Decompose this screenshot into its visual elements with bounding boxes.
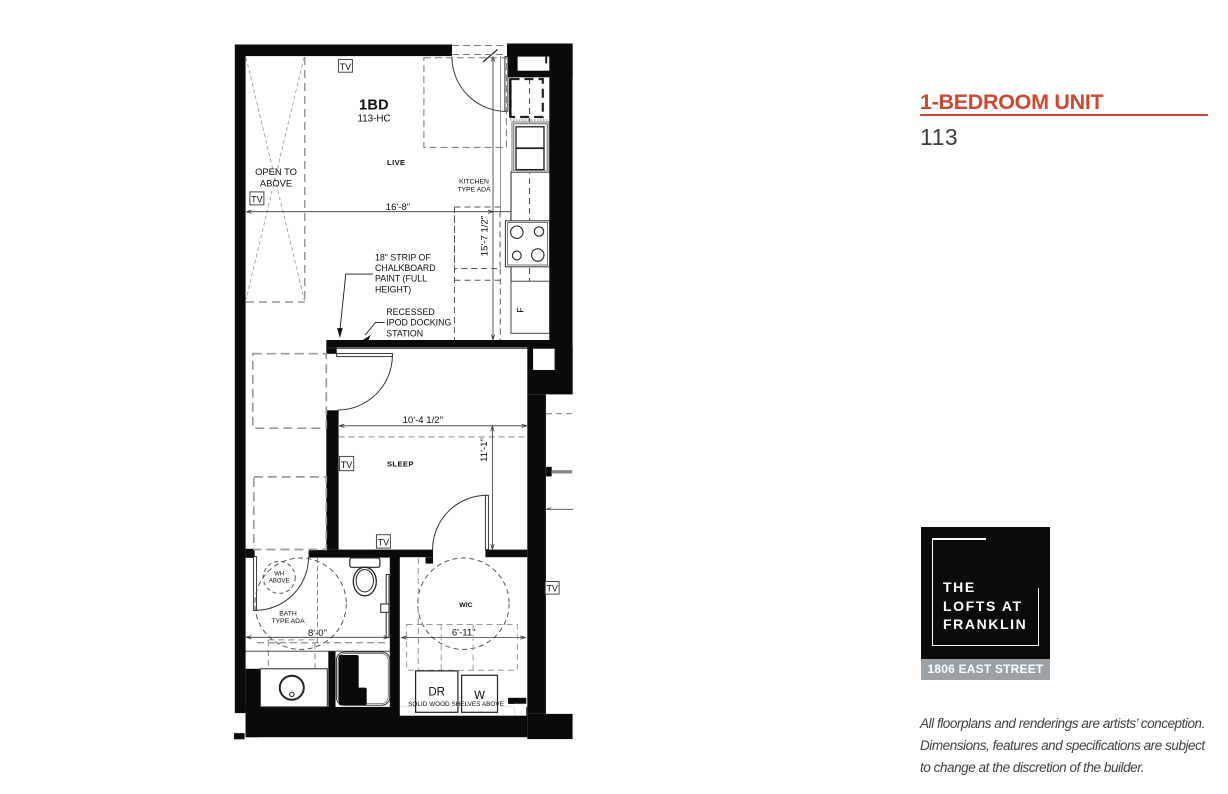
svg-text:TV: TV (378, 538, 390, 548)
svg-text:HEIGHT): HEIGHT) (375, 284, 411, 294)
svg-text:OPEN TO: OPEN TO (255, 166, 297, 177)
svg-text:CHALKBOARD: CHALKBOARD (375, 263, 436, 273)
svg-text:TV: TV (341, 460, 353, 470)
svg-text:18" STRIP OF: 18" STRIP OF (375, 252, 431, 262)
svg-text:TYPE ADA: TYPE ADA (271, 618, 305, 625)
svg-text:KITCHEN: KITCHEN (459, 179, 489, 186)
svg-text:F: F (516, 307, 526, 313)
svg-text:ABOVE: ABOVE (260, 178, 292, 189)
svg-text:BATH: BATH (279, 611, 297, 618)
svg-text:TV: TV (251, 194, 263, 204)
svg-text:10'-4 1/2": 10'-4 1/2" (403, 415, 443, 426)
svg-text:LIVE: LIVE (387, 158, 405, 167)
svg-text:113-HC: 113-HC (357, 114, 390, 125)
svg-text:RECESSED: RECESSED (386, 307, 434, 317)
svg-text:SLEEP: SLEEP (387, 460, 414, 469)
svg-text:DR: DR (428, 687, 445, 699)
svg-text:SOLID WOOD SHELVES ABOVE: SOLID WOOD SHELVES ABOVE (408, 701, 504, 708)
svg-text:6'-11": 6'-11" (452, 628, 476, 639)
svg-text:PAINT (FULL: PAINT (FULL (375, 274, 427, 284)
svg-text:1BD: 1BD (359, 98, 389, 114)
svg-text:STATION: STATION (386, 328, 423, 338)
svg-text:TV: TV (546, 584, 558, 594)
svg-text:IPOD DOCKING: IPOD DOCKING (386, 318, 451, 328)
svg-text:WIC: WIC (459, 602, 472, 609)
svg-text:TV: TV (340, 62, 352, 72)
svg-text:WH: WH (274, 572, 284, 578)
svg-text:TYPE ADA: TYPE ADA (457, 187, 491, 194)
svg-text:11'-1": 11'-1" (479, 438, 490, 462)
svg-text:ABOVE: ABOVE (269, 579, 290, 585)
svg-text:15'-7 1/2": 15'-7 1/2" (480, 216, 491, 256)
